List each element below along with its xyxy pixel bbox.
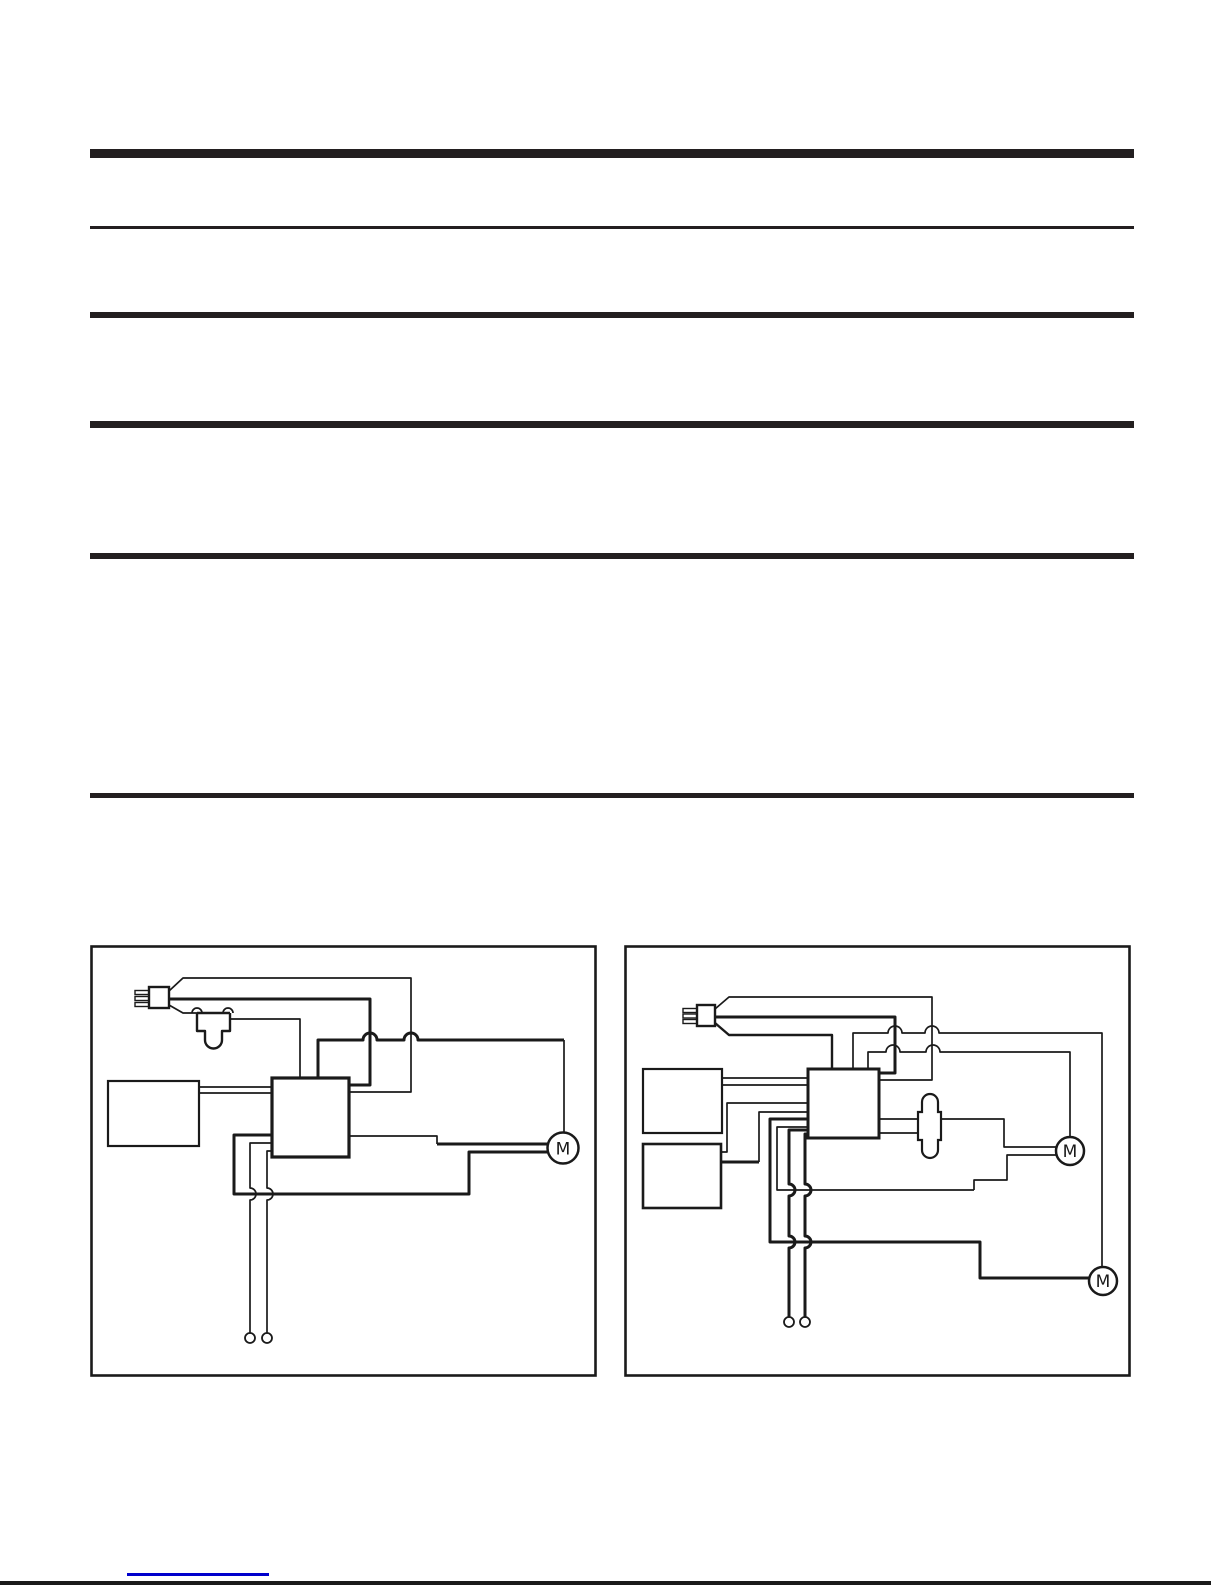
- power-plug-icon: [683, 1005, 715, 1026]
- section-rule-6: [90, 793, 1134, 798]
- diagram-frame: [92, 947, 596, 1376]
- motor-label: M: [556, 1140, 571, 1160]
- component-box: [643, 1069, 722, 1133]
- component-box: [643, 1144, 721, 1208]
- section-rule-2: [90, 226, 1134, 229]
- power-plug-icon: [135, 987, 169, 1008]
- control-board-box: [808, 1069, 879, 1138]
- motor-label: M: [1063, 1142, 1078, 1162]
- component-box: [108, 1081, 199, 1146]
- terminal-circle: [800, 1317, 810, 1327]
- left-wiring-diagram: M: [90, 945, 597, 1377]
- capacitor-icon: [918, 1094, 941, 1158]
- terminal-circle: [262, 1333, 272, 1343]
- section-rule-5: [90, 553, 1134, 559]
- motor-symbol: M: [548, 1133, 579, 1164]
- control-board-box: [272, 1078, 349, 1157]
- right-wiring-diagram: M M: [624, 945, 1131, 1377]
- document-page: M: [0, 0, 1225, 1585]
- section-rule-1: [90, 149, 1134, 158]
- page-bottom-edge: [0, 1581, 1211, 1585]
- connector-icon: [197, 1013, 230, 1049]
- terminal-circle: [784, 1317, 794, 1327]
- section-rule-3: [90, 312, 1134, 318]
- footer-link-underline[interactable]: [127, 1573, 269, 1576]
- motor-symbol: M: [1056, 1137, 1084, 1165]
- section-rule-4: [90, 421, 1134, 428]
- terminal-circle: [245, 1333, 255, 1343]
- wiring-harness: [715, 997, 1102, 1317]
- motor-label: M: [1096, 1272, 1111, 1292]
- motor-symbol: M: [1089, 1267, 1117, 1295]
- wiring-harness: [169, 978, 564, 1333]
